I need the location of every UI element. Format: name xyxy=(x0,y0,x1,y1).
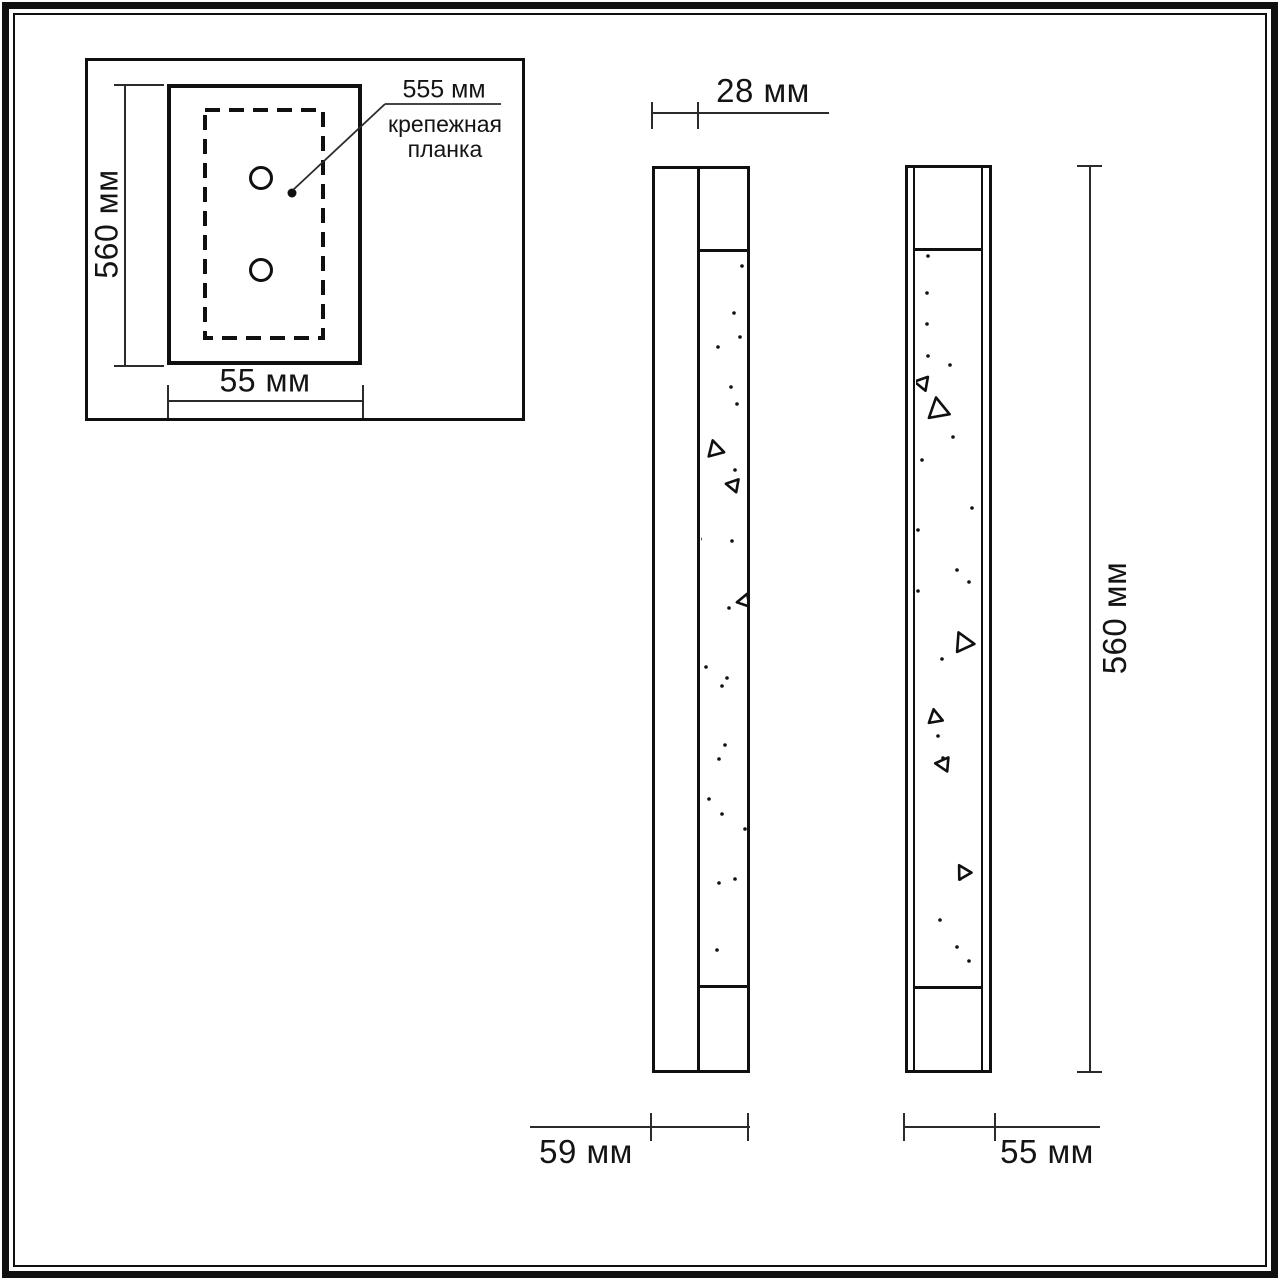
front-view-top-cap-line xyxy=(914,248,982,251)
bracket-name-line2: планка xyxy=(388,137,502,162)
bracket-name-label: крепежная планка xyxy=(388,112,502,163)
dim-tick xyxy=(167,385,169,418)
side-width-dim-line xyxy=(530,1126,750,1128)
side-depth-dim-line xyxy=(652,112,829,114)
front-view-left-rail-line xyxy=(913,165,915,1073)
mounting-detail-inset: 560 мм 55 мм 555 мм крепежная планка xyxy=(85,58,525,421)
side-view-divider-line xyxy=(697,166,700,1073)
dim-tick xyxy=(650,1113,652,1141)
bracket-length-label: 555 мм xyxy=(402,76,485,105)
side-depth-bottom-label: 59 мм xyxy=(539,1133,633,1171)
dim-tick xyxy=(1077,165,1102,167)
front-height-label: 560 мм xyxy=(1096,562,1134,675)
front-sparkles-svg xyxy=(916,253,980,985)
dim-tick xyxy=(994,1113,996,1141)
dim-tick xyxy=(362,385,364,418)
dim-tick xyxy=(114,365,164,367)
dim-tick xyxy=(114,84,164,86)
bracket-name-line1: крепежная xyxy=(388,112,502,137)
front-width-dim-line xyxy=(904,1126,1100,1128)
side-depth-top-label: 28 мм xyxy=(716,72,810,110)
dim-tick xyxy=(747,1113,749,1141)
inset-width-label: 55 мм xyxy=(220,363,311,400)
dim-tick xyxy=(1077,1071,1102,1073)
mounting-hole-bottom xyxy=(249,258,273,282)
dim-tick xyxy=(651,102,653,129)
side-view-top-cap-line xyxy=(698,249,750,252)
side-sparkles-svg xyxy=(701,254,747,982)
inset-width-dim-line xyxy=(167,400,363,402)
front-width-label: 55 мм xyxy=(1000,1133,1094,1171)
inset-height-label: 560 мм xyxy=(89,169,126,278)
front-view-right-rail-line xyxy=(981,165,983,1073)
technical-drawing-page: 560 мм 55 мм 555 мм крепежная планка 28 … xyxy=(0,0,1280,1280)
side-view-bottom-cap-line xyxy=(698,985,750,988)
dim-tick xyxy=(903,1113,905,1141)
mounting-hole-top xyxy=(249,166,273,190)
front-height-dim-line xyxy=(1089,166,1091,1073)
front-view-bottom-cap-line xyxy=(914,986,982,989)
dim-tick xyxy=(697,102,699,129)
